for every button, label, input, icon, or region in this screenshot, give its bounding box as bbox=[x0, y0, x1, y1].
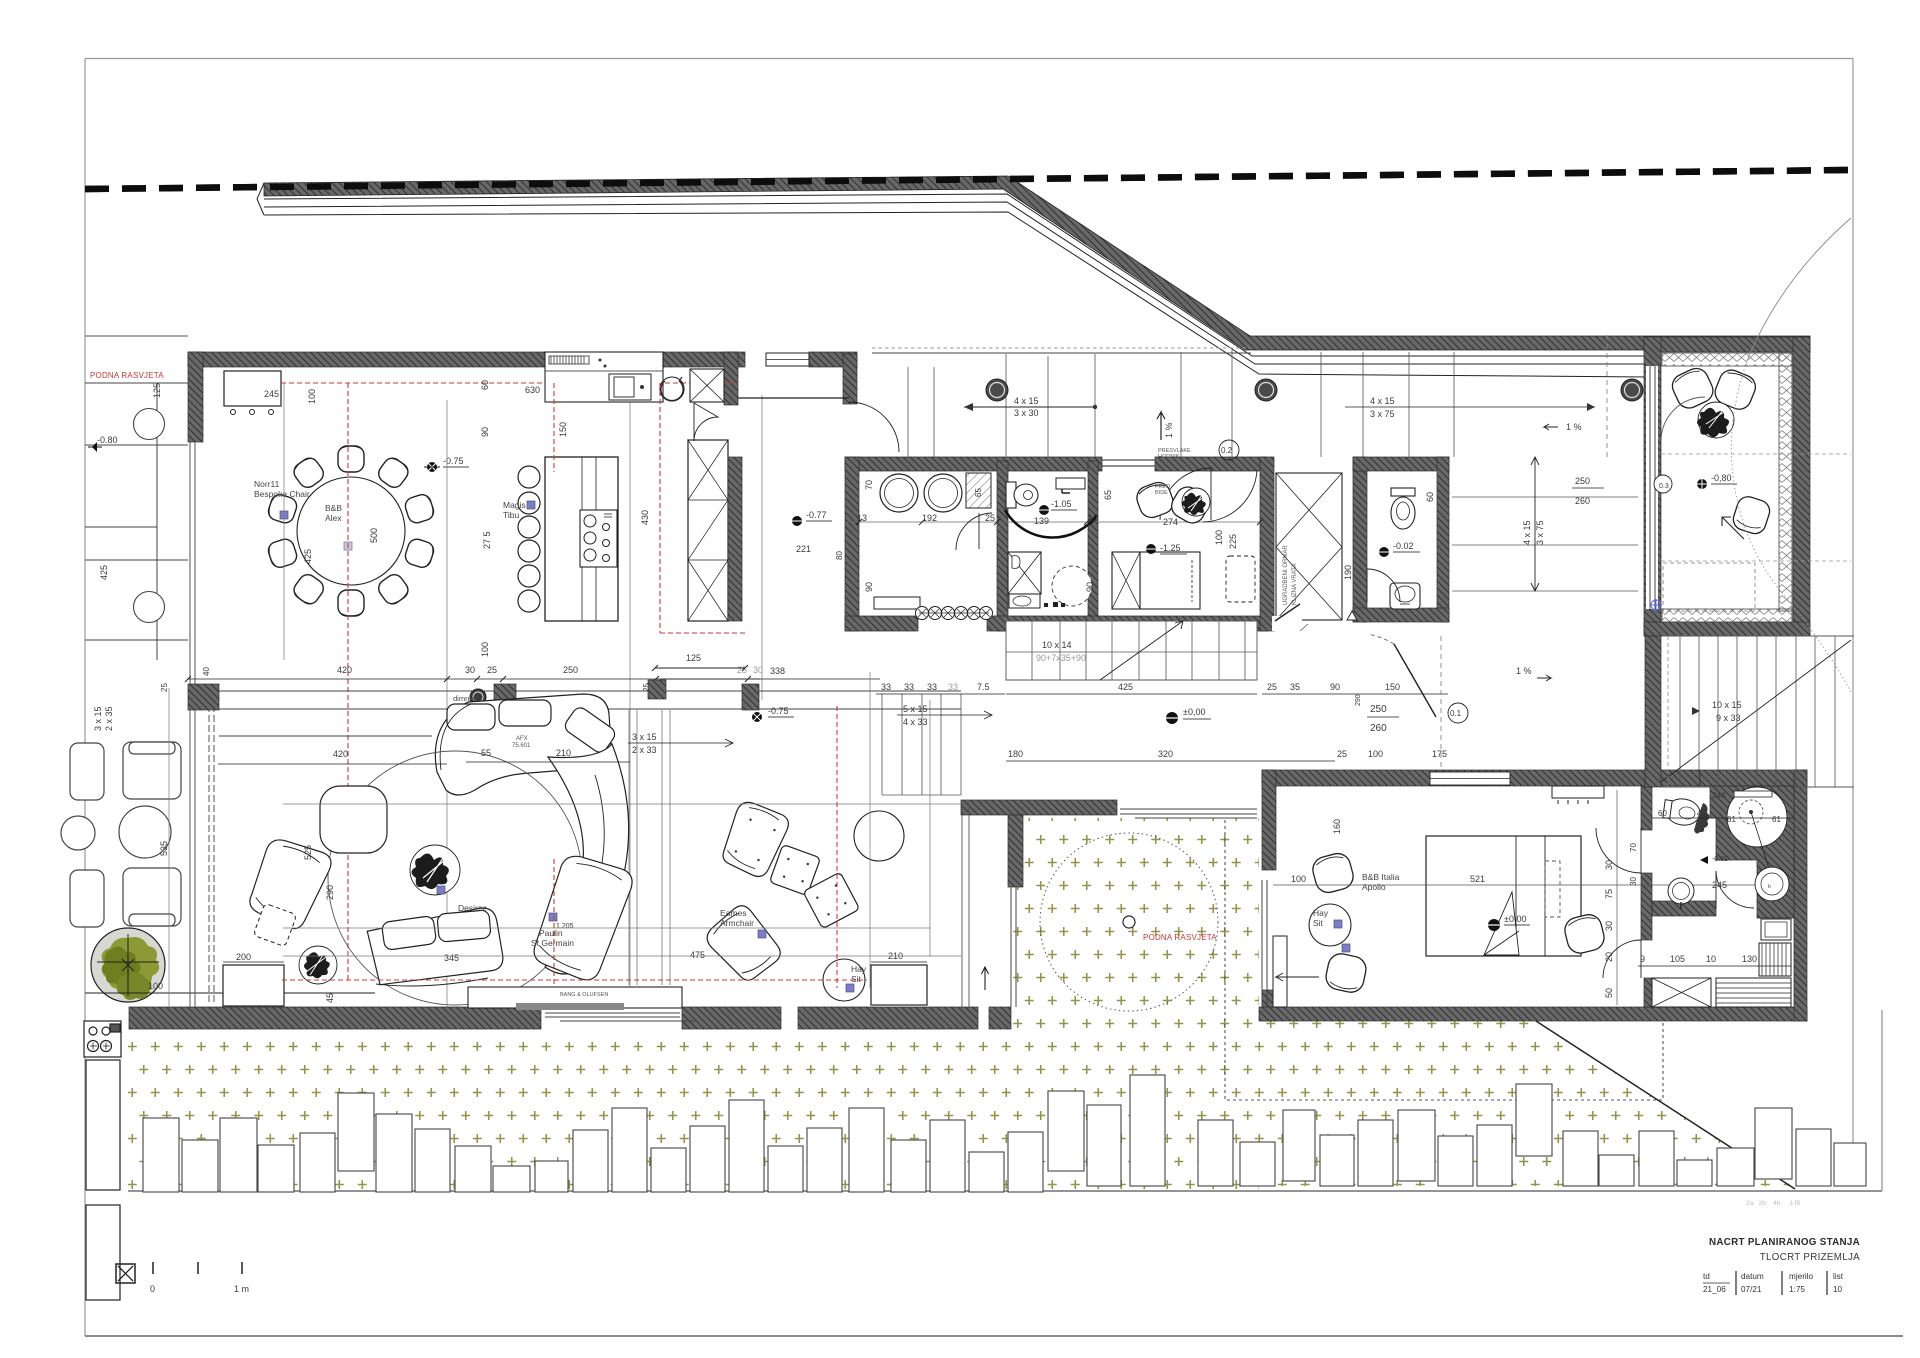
svg-text:90+7x35+90: 90+7x35+90 bbox=[1036, 653, 1086, 663]
svg-text:290: 290 bbox=[325, 885, 335, 900]
svg-text:St Germain: St Germain bbox=[531, 938, 574, 948]
svg-text:250: 250 bbox=[1370, 704, 1387, 715]
svg-text:139: 139 bbox=[1034, 516, 1049, 526]
svg-text:535: 535 bbox=[159, 841, 169, 856]
svg-text:521: 521 bbox=[1470, 874, 1485, 884]
svg-text:25: 25 bbox=[487, 665, 497, 675]
svg-text:0: 0 bbox=[150, 1284, 155, 1294]
svg-text:4 x 15: 4 x 15 bbox=[1014, 396, 1039, 406]
svg-text:-0.80: -0.80 bbox=[97, 435, 118, 445]
svg-text:425: 425 bbox=[1118, 682, 1133, 692]
svg-text:190: 190 bbox=[1343, 565, 1353, 580]
svg-text:list: list bbox=[1833, 1272, 1844, 1281]
svg-text:-0.02: -0.02 bbox=[1712, 856, 1728, 863]
svg-text:KLIZNA VRATA: KLIZNA VRATA bbox=[1292, 564, 1298, 605]
svg-text:0.3: 0.3 bbox=[1659, 483, 1669, 490]
svg-text:245: 245 bbox=[1712, 880, 1727, 890]
svg-text:10: 10 bbox=[1833, 1285, 1843, 1294]
svg-text:100: 100 bbox=[1214, 530, 1224, 545]
svg-text:Hay: Hay bbox=[1313, 908, 1329, 918]
svg-text:100: 100 bbox=[148, 981, 163, 991]
svg-text:1 %: 1 % bbox=[1164, 422, 1174, 438]
svg-text:35: 35 bbox=[1290, 682, 1300, 692]
svg-text:mjerilo: mjerilo bbox=[1789, 1272, 1814, 1281]
svg-text:NACRT PLANIRANOG STANJA: NACRT PLANIRANOG STANJA bbox=[1709, 1237, 1860, 1248]
svg-text:30: 30 bbox=[1629, 877, 1638, 886]
svg-text:75.601: 75.601 bbox=[512, 743, 531, 749]
svg-text:21_06: 21_06 bbox=[1703, 1285, 1726, 1294]
svg-text:70: 70 bbox=[1629, 843, 1638, 852]
svg-text:320: 320 bbox=[1158, 749, 1173, 759]
svg-text:475: 475 bbox=[690, 950, 705, 960]
svg-text:9: 9 bbox=[1640, 954, 1645, 964]
svg-text:2a 2b 4b 1 f5: 2a 2b 4b 1 f5 bbox=[1746, 1200, 1801, 1207]
svg-text:-0,80: -0,80 bbox=[1711, 473, 1732, 483]
svg-text:0.1: 0.1 bbox=[1450, 709, 1462, 718]
svg-text:1 %: 1 % bbox=[1566, 422, 1582, 432]
svg-text:60: 60 bbox=[1425, 492, 1435, 502]
svg-text:260: 260 bbox=[1370, 723, 1387, 734]
svg-text:±0,00: ±0,00 bbox=[1504, 914, 1526, 924]
svg-text:UGRADBENI ORMAR: UGRADBENI ORMAR bbox=[1283, 545, 1289, 605]
svg-text:160: 160 bbox=[1332, 819, 1342, 834]
svg-text:13: 13 bbox=[857, 513, 867, 523]
svg-text:65: 65 bbox=[1103, 490, 1113, 500]
svg-text:630: 630 bbox=[525, 385, 540, 395]
svg-text:BIDE: BIDE bbox=[1155, 490, 1168, 496]
svg-text:221: 221 bbox=[796, 544, 811, 554]
svg-text:30: 30 bbox=[465, 665, 475, 675]
svg-text:4 x 15: 4 x 15 bbox=[1522, 520, 1532, 545]
svg-text:TLOCRT PRIZEMLJA: TLOCRT PRIZEMLJA bbox=[1760, 1252, 1860, 1263]
svg-text:9 x 33: 9 x 33 bbox=[1716, 713, 1741, 723]
svg-text:datum: datum bbox=[1741, 1272, 1764, 1281]
svg-text:30: 30 bbox=[1604, 921, 1614, 931]
svg-text:Bespoke Chair: Bespoke Chair bbox=[254, 489, 310, 499]
svg-text:45: 45 bbox=[325, 993, 335, 1003]
svg-text:27 5: 27 5 bbox=[482, 531, 492, 549]
svg-text:-0.75: -0.75 bbox=[443, 456, 464, 466]
svg-text:1 m: 1 m bbox=[234, 1284, 249, 1294]
svg-text:10 x 14: 10 x 14 bbox=[1042, 640, 1072, 650]
svg-text:70: 70 bbox=[864, 480, 874, 490]
svg-text:75: 75 bbox=[1604, 889, 1614, 899]
svg-text:100: 100 bbox=[480, 642, 490, 657]
svg-text:3 x 15: 3 x 15 bbox=[632, 732, 657, 742]
svg-text:Magis: Magis bbox=[503, 500, 526, 510]
svg-text:Desiree: Desiree bbox=[458, 903, 488, 913]
svg-text:180: 180 bbox=[1008, 749, 1023, 759]
svg-text:420: 420 bbox=[333, 749, 348, 759]
svg-text:HODNIK: HODNIK bbox=[1158, 454, 1180, 460]
svg-text:125: 125 bbox=[152, 383, 162, 398]
svg-text:1 %: 1 % bbox=[1516, 666, 1532, 676]
svg-text:41: 41 bbox=[1697, 809, 1706, 818]
svg-text:-0.02: -0.02 bbox=[1393, 541, 1414, 551]
svg-text:225: 225 bbox=[1228, 534, 1238, 549]
svg-text:Tibu: Tibu bbox=[503, 510, 519, 520]
svg-text:Hay: Hay bbox=[851, 964, 867, 974]
svg-text:125: 125 bbox=[686, 653, 701, 663]
svg-text:150: 150 bbox=[558, 422, 568, 437]
svg-text:55: 55 bbox=[481, 748, 491, 758]
svg-text:130: 130 bbox=[1742, 954, 1757, 964]
svg-text:210: 210 bbox=[556, 748, 571, 758]
svg-text:Sit: Sit bbox=[851, 974, 862, 984]
svg-text:100: 100 bbox=[1291, 874, 1306, 884]
svg-text:3 x 75: 3 x 75 bbox=[1535, 520, 1545, 545]
svg-text:Eames: Eames bbox=[720, 908, 746, 918]
svg-text:Armchair: Armchair bbox=[720, 918, 754, 928]
svg-text:25: 25 bbox=[1267, 682, 1277, 692]
svg-text:4 x 33: 4 x 33 bbox=[903, 717, 928, 727]
svg-text:1.205: 1.205 bbox=[556, 923, 574, 930]
svg-text:1:75: 1:75 bbox=[1789, 1285, 1805, 1294]
svg-text:B&B Italia: B&B Italia bbox=[1362, 872, 1400, 882]
svg-text:25: 25 bbox=[985, 513, 995, 523]
svg-text:430: 430 bbox=[640, 510, 650, 525]
svg-text:90: 90 bbox=[1085, 582, 1095, 592]
svg-text:PODNA RASVJETA: PODNA RASVJETA bbox=[1143, 933, 1217, 942]
svg-text:Norr11: Norr11 bbox=[254, 479, 280, 489]
svg-text:425: 425 bbox=[99, 565, 109, 580]
svg-text:-0.75: -0.75 bbox=[768, 706, 789, 716]
svg-text:250: 250 bbox=[563, 665, 578, 675]
svg-text:13: 13 bbox=[1088, 513, 1098, 523]
svg-text:2 x 33: 2 x 33 bbox=[632, 745, 657, 755]
svg-text:65: 65 bbox=[974, 488, 983, 497]
svg-text:0.2: 0.2 bbox=[1221, 446, 1233, 455]
svg-text:PODNA RASVJETA: PODNA RASVJETA bbox=[90, 371, 164, 380]
svg-text:25: 25 bbox=[160, 683, 169, 692]
svg-text:60: 60 bbox=[1658, 809, 1667, 818]
svg-text:420: 420 bbox=[337, 665, 352, 675]
svg-text:3 x 15: 3 x 15 bbox=[93, 706, 103, 731]
svg-text:25: 25 bbox=[1337, 749, 1347, 759]
svg-text:61: 61 bbox=[1772, 815, 1781, 824]
svg-text:3 x 30: 3 x 30 bbox=[1014, 408, 1039, 418]
svg-text:61: 61 bbox=[1727, 815, 1736, 824]
svg-text:30: 30 bbox=[753, 665, 763, 675]
svg-text:Sit: Sit bbox=[1313, 918, 1324, 928]
svg-text:100: 100 bbox=[307, 389, 317, 404]
svg-text:100: 100 bbox=[1368, 749, 1383, 759]
svg-text:BANG & OLUFSEN: BANG & OLUFSEN bbox=[560, 992, 608, 998]
svg-text:2 x 35: 2 x 35 bbox=[104, 706, 114, 731]
svg-text:Apollo: Apollo bbox=[1362, 882, 1386, 892]
svg-text:274: 274 bbox=[1163, 517, 1178, 527]
svg-text:290: 290 bbox=[1355, 694, 1362, 706]
svg-text:±0,00: ±0,00 bbox=[1183, 707, 1205, 717]
svg-text:244: 244 bbox=[1712, 791, 1726, 800]
svg-text:-1.25: -1.25 bbox=[1160, 543, 1181, 553]
svg-text:10: 10 bbox=[1706, 954, 1716, 964]
svg-text:07/21: 07/21 bbox=[1741, 1285, 1762, 1294]
svg-text:150: 150 bbox=[1385, 682, 1400, 692]
svg-text:b: b bbox=[1768, 884, 1771, 890]
svg-text:345: 345 bbox=[444, 953, 459, 963]
svg-text:245: 245 bbox=[264, 389, 279, 399]
svg-text:AFX: AFX bbox=[516, 736, 528, 742]
svg-text:105: 105 bbox=[1670, 954, 1685, 964]
svg-text:90: 90 bbox=[480, 427, 490, 437]
svg-text:260: 260 bbox=[1575, 496, 1590, 506]
svg-text:500: 500 bbox=[369, 528, 379, 543]
svg-text:7.5: 7.5 bbox=[977, 682, 990, 692]
svg-text:80: 80 bbox=[835, 551, 844, 560]
svg-text:90: 90 bbox=[1330, 682, 1340, 692]
svg-text:175: 175 bbox=[1432, 749, 1447, 759]
svg-text:25: 25 bbox=[737, 665, 747, 675]
svg-text:525: 525 bbox=[303, 845, 313, 860]
svg-text:-1.05: -1.05 bbox=[1051, 499, 1072, 509]
svg-text:B&B: B&B bbox=[325, 503, 342, 513]
svg-text:192: 192 bbox=[922, 513, 937, 523]
svg-text:td: td bbox=[1703, 1272, 1710, 1281]
svg-text:50: 50 bbox=[1604, 988, 1614, 998]
svg-text:4 x 15: 4 x 15 bbox=[1370, 396, 1395, 406]
svg-text:10 x 15: 10 x 15 bbox=[1712, 700, 1742, 710]
svg-text:Alex: Alex bbox=[325, 513, 342, 523]
svg-text:90: 90 bbox=[864, 582, 874, 592]
svg-text:3 x 75: 3 x 75 bbox=[1370, 409, 1395, 419]
svg-text:30: 30 bbox=[1604, 860, 1614, 870]
svg-text:250: 250 bbox=[1575, 476, 1590, 486]
svg-text:338: 338 bbox=[770, 666, 785, 676]
svg-text:425: 425 bbox=[303, 549, 313, 564]
svg-text:200: 200 bbox=[236, 952, 251, 962]
svg-text:40: 40 bbox=[202, 667, 211, 676]
svg-text:60: 60 bbox=[480, 380, 490, 390]
svg-text:-0.77: -0.77 bbox=[806, 510, 827, 520]
